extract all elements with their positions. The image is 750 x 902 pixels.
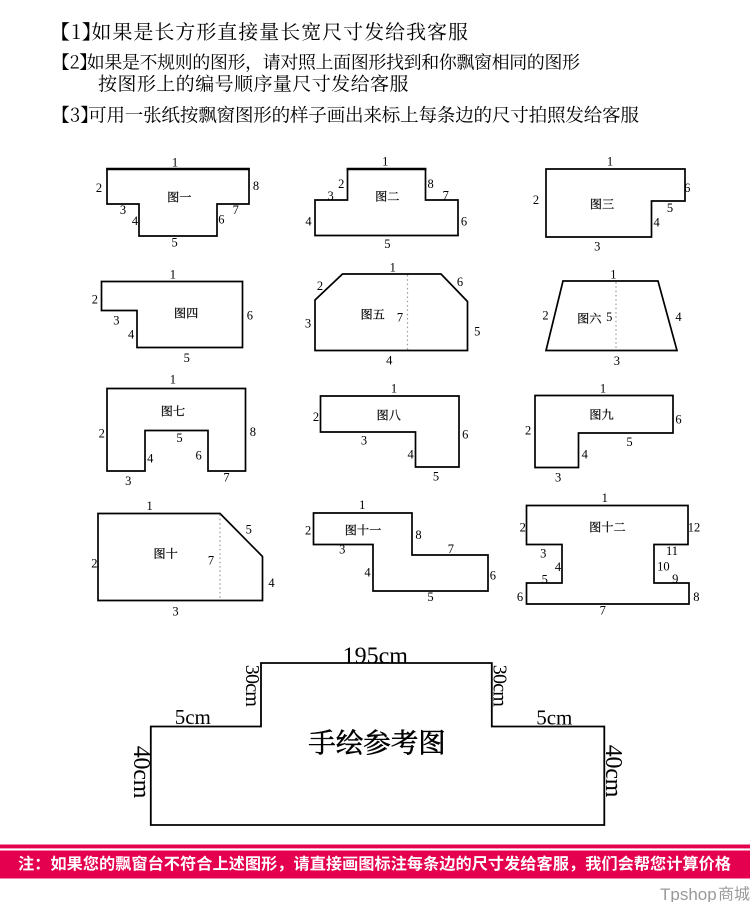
svg-text:5: 5 [176, 431, 182, 445]
svg-text:8: 8 [250, 425, 256, 439]
svg-text:5: 5 [427, 590, 433, 604]
svg-text:6: 6 [675, 413, 681, 427]
svg-text:3: 3 [594, 240, 600, 254]
svg-text:6: 6 [461, 215, 467, 229]
svg-text:5: 5 [384, 237, 390, 251]
svg-text:3: 3 [172, 605, 178, 619]
svg-text:4: 4 [386, 354, 393, 368]
svg-text:5: 5 [542, 573, 548, 587]
svg-text:7: 7 [397, 311, 403, 325]
svg-text:1: 1 [172, 156, 178, 170]
svg-text:8: 8 [415, 528, 421, 542]
svg-text:1: 1 [600, 382, 606, 396]
svg-text:1: 1 [359, 498, 365, 512]
svg-text:6: 6 [462, 428, 468, 442]
svg-text:3: 3 [339, 543, 345, 557]
svg-text:4: 4 [407, 448, 414, 462]
svg-text:6: 6 [247, 309, 253, 323]
svg-text:2: 2 [520, 521, 526, 535]
svg-text:4: 4 [305, 215, 312, 229]
svg-text:5: 5 [606, 310, 612, 324]
svg-text:3: 3 [305, 317, 311, 331]
svg-text:10: 10 [657, 560, 670, 574]
svg-text:195cm: 195cm [343, 644, 409, 670]
svg-text:Tpshop: Tpshop [660, 885, 717, 902]
svg-text:4: 4 [132, 214, 139, 228]
svg-text:2: 2 [91, 557, 97, 571]
svg-text:7: 7 [443, 189, 449, 203]
svg-text:7: 7 [223, 471, 229, 485]
svg-text:7: 7 [208, 554, 214, 568]
svg-text:2: 2 [542, 309, 548, 323]
svg-text:1: 1 [170, 373, 176, 387]
svg-text:2: 2 [92, 293, 98, 307]
svg-text:3: 3 [540, 547, 546, 561]
svg-text:4: 4 [364, 566, 371, 580]
svg-text:4: 4 [582, 448, 589, 462]
svg-text:1: 1 [610, 268, 616, 282]
svg-text:6: 6 [684, 181, 690, 195]
svg-text:7: 7 [600, 604, 606, 618]
svg-text:1: 1 [607, 155, 613, 169]
svg-text:6: 6 [490, 569, 496, 583]
svg-text:3: 3 [327, 189, 333, 203]
svg-text:2: 2 [313, 410, 319, 424]
svg-text:4: 4 [675, 310, 682, 324]
svg-text:6: 6 [517, 590, 523, 604]
svg-text:4: 4 [653, 216, 660, 230]
svg-text:2: 2 [305, 524, 311, 538]
svg-text:1: 1 [602, 491, 608, 505]
svg-text:5cm: 5cm [536, 706, 572, 730]
svg-text:30cm: 30cm [489, 665, 511, 707]
svg-text:5: 5 [171, 235, 177, 249]
svg-text:7: 7 [448, 542, 454, 556]
svg-text:6: 6 [195, 449, 201, 463]
svg-text:4: 4 [268, 576, 275, 590]
svg-text:4: 4 [128, 328, 135, 342]
svg-text:1: 1 [391, 382, 397, 396]
svg-text:12: 12 [688, 521, 701, 535]
svg-text:11: 11 [666, 544, 678, 558]
svg-text:3: 3 [125, 474, 131, 488]
svg-text:3: 3 [120, 203, 126, 217]
svg-text:8: 8 [427, 177, 433, 191]
svg-text:3: 3 [361, 434, 367, 448]
svg-text:4: 4 [555, 560, 562, 574]
svg-text:1: 1 [382, 155, 388, 169]
svg-text:1: 1 [170, 268, 176, 282]
svg-text:8: 8 [253, 179, 259, 193]
svg-text:9: 9 [672, 572, 678, 586]
svg-text:2: 2 [525, 424, 531, 438]
svg-text:2: 2 [99, 427, 105, 441]
svg-text:2: 2 [317, 279, 323, 293]
svg-text:6: 6 [218, 213, 224, 227]
svg-text:5: 5 [246, 523, 252, 537]
svg-text:5: 5 [433, 470, 439, 484]
svg-text:3: 3 [614, 354, 620, 368]
svg-text:40cm: 40cm [600, 745, 626, 798]
svg-text:2: 2 [96, 181, 102, 195]
svg-text:5cm: 5cm [175, 705, 211, 729]
svg-text:5: 5 [667, 201, 673, 215]
svg-text:1: 1 [146, 499, 152, 513]
svg-text:4: 4 [147, 452, 154, 466]
svg-text:3: 3 [555, 471, 561, 485]
svg-text:1: 1 [390, 261, 396, 275]
svg-text:2: 2 [533, 193, 539, 207]
svg-text:5: 5 [184, 351, 190, 365]
svg-text:5: 5 [626, 435, 632, 449]
svg-text:7: 7 [233, 203, 239, 217]
svg-text:30cm: 30cm [241, 665, 263, 707]
svg-text:5: 5 [474, 325, 480, 339]
svg-text:40cm: 40cm [128, 746, 154, 799]
svg-text:8: 8 [693, 590, 699, 604]
svg-text:2: 2 [338, 177, 344, 191]
svg-text:3: 3 [113, 314, 119, 328]
svg-text:6: 6 [457, 275, 463, 289]
